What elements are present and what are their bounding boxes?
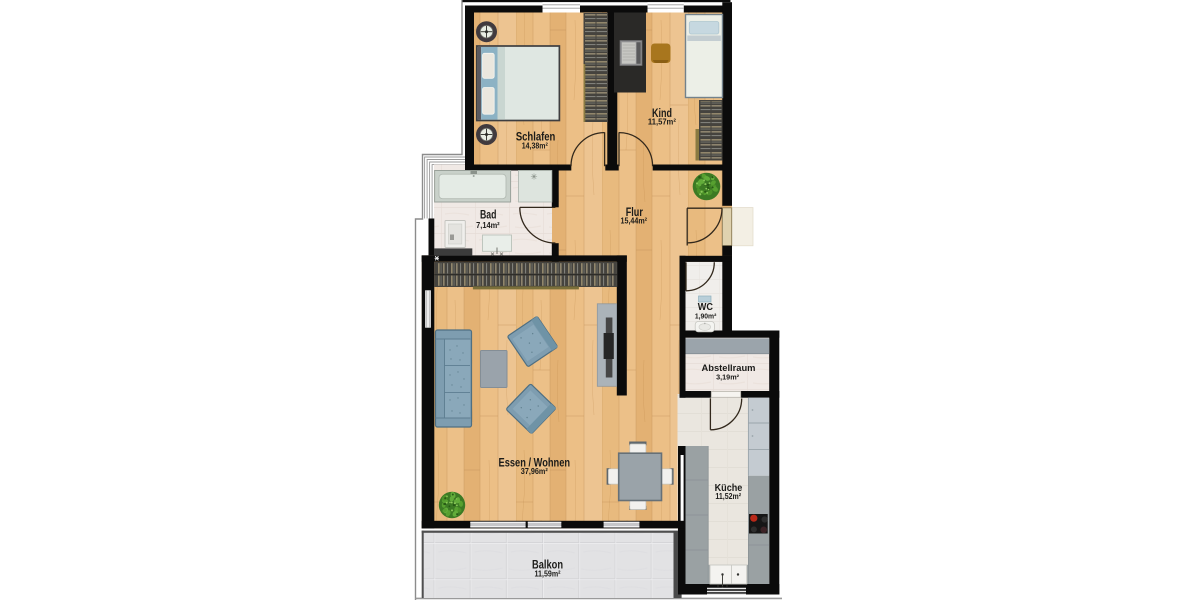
svg-text:15,44m²: 15,44m²: [621, 217, 648, 226]
svg-text:7,14m²: 7,14m²: [476, 221, 500, 230]
svg-text:3,19m²: 3,19m²: [716, 373, 740, 382]
svg-text:11,57m²: 11,57m²: [648, 118, 676, 127]
svg-text:Bad: Bad: [480, 209, 497, 221]
svg-text:1,90m²: 1,90m²: [695, 311, 717, 320]
svg-text:14,38m²: 14,38m²: [522, 142, 548, 151]
svg-text:11,52m²: 11,52m²: [715, 492, 741, 501]
svg-text:11,59m²: 11,59m²: [535, 570, 561, 579]
svg-text:37,96m²: 37,96m²: [521, 467, 548, 476]
